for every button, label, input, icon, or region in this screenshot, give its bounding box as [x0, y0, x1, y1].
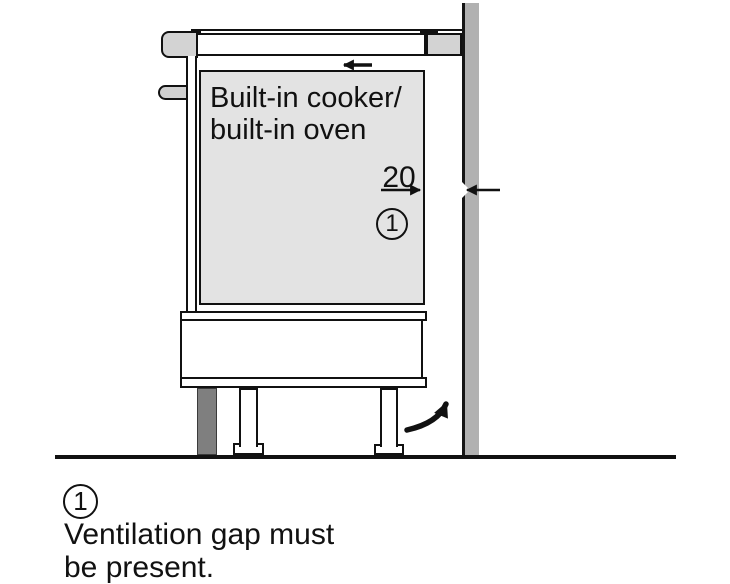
legend-text: Ventilation gap must be present. — [64, 518, 404, 584]
legend-1-badge: 1 — [63, 484, 98, 519]
oven-label: Built-in cooker/ built-in oven — [210, 82, 430, 146]
legend-1-number: 1 — [73, 486, 87, 517]
airflow-arrow-icon — [407, 404, 446, 430]
gap-dimension-label: 20 — [378, 161, 420, 195]
legend-text-line1: Ventilation gap must — [64, 518, 404, 551]
installation-diagram: Built-in cooker/ built-in oven 20 1 1 Ve… — [0, 0, 730, 584]
legend-text-line2: be present. — [64, 551, 404, 584]
oven-label-line1: Built-in cooker/ — [210, 82, 430, 114]
callout-1-badge: 1 — [376, 208, 408, 240]
oven-label-line2: built-in oven — [210, 114, 430, 146]
callout-1-number: 1 — [385, 210, 398, 238]
